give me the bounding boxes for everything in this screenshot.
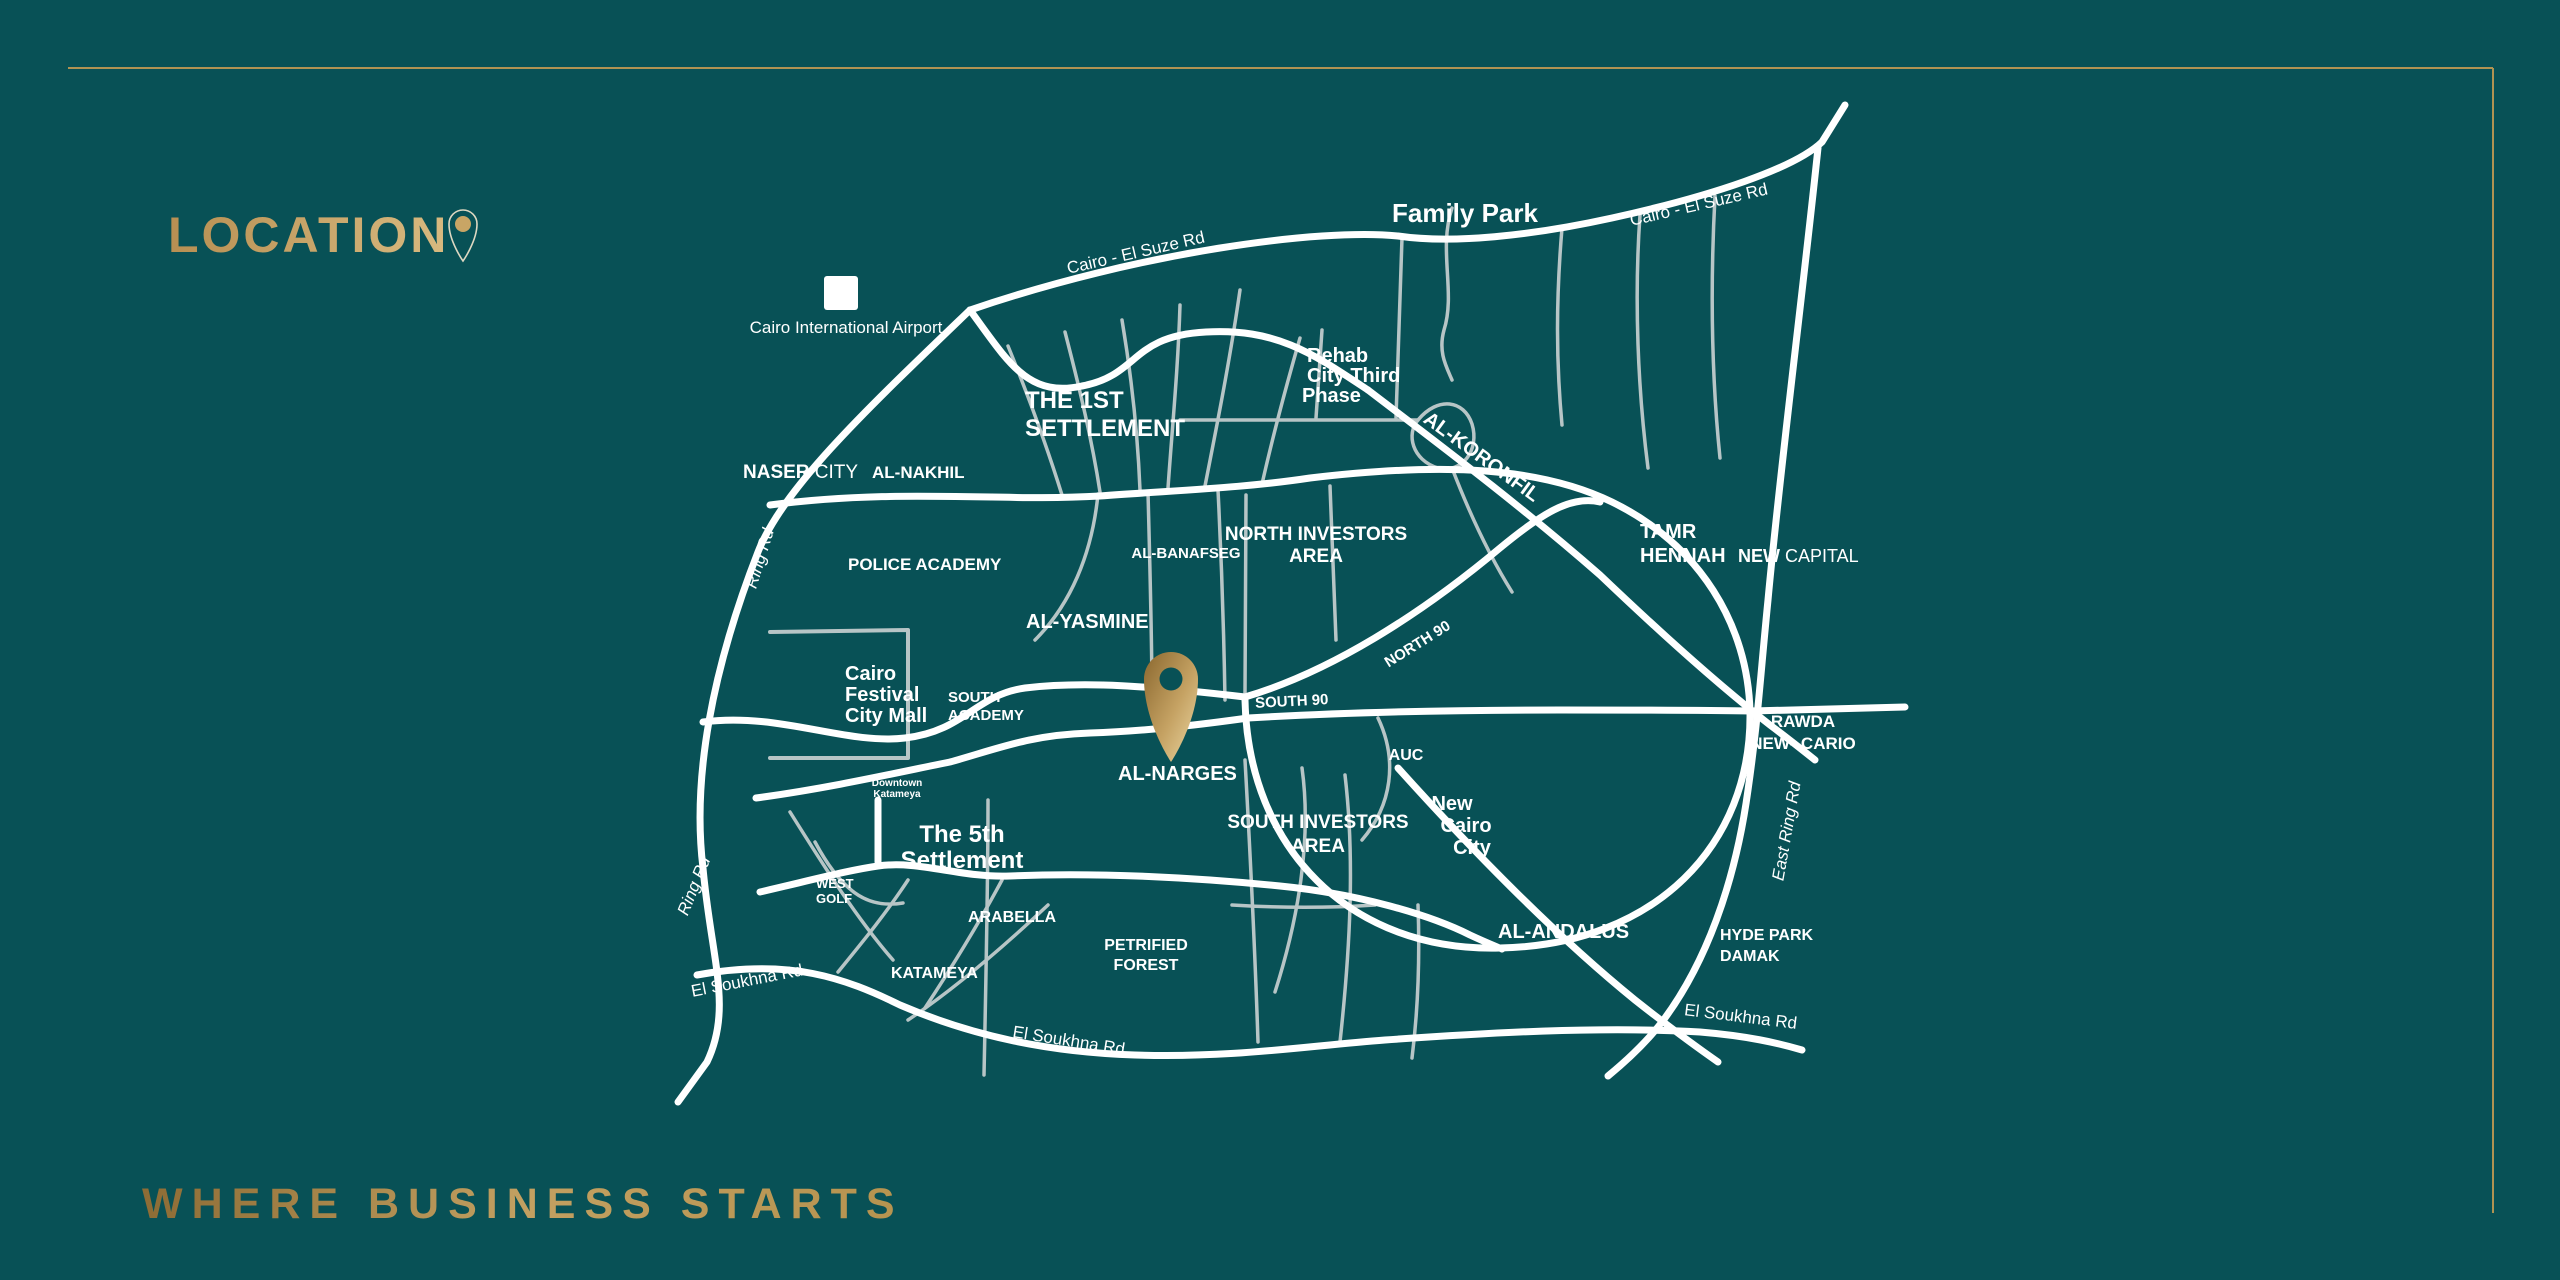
label-koronfil: AL-KORONFIL [1419, 408, 1543, 507]
label-rehab-l3: Phase [1302, 385, 1361, 407]
tagline: WHERE BUSINESS STARTS [142, 1180, 904, 1229]
label-rehab-l1: Rehab [1307, 345, 1368, 367]
label-rawda-l2: NEW--CARIO [1750, 734, 1855, 753]
label-north-investors-l2: AREA [1289, 546, 1343, 567]
label-downtown-l2: Katameya [873, 789, 921, 800]
label-petrified-l2: FOREST [1114, 957, 1179, 974]
label-naser-light: CITY [810, 462, 859, 483]
label-west-golf-l2: GOLF [816, 891, 852, 906]
project-pin-icon [1144, 652, 1198, 762]
road-label-south-90: SOUTH 90 [1255, 691, 1329, 712]
label-new-cairo-l2: Cairo [1440, 815, 1491, 837]
page-title: LOCATION [168, 206, 449, 264]
airport-label: Cairo International Airport [750, 318, 943, 337]
label-new-cairo-l1: New [1431, 793, 1473, 815]
label-naser-bold: NASER [743, 462, 810, 483]
road-label-ring-upper: Ring Rd [742, 526, 778, 591]
label-first-settlement-l2: SETTLEMENT [1025, 415, 1185, 442]
label-nakhil: AL-NAKHIL [872, 463, 965, 482]
label-police: POLICE ACADEMY [848, 555, 1002, 574]
label-rehab-l2: City Third [1307, 365, 1400, 387]
label-naser-city: NASER CITY [743, 462, 858, 483]
label-katameya: KATAMEYA [891, 965, 978, 982]
road-label-suze-right: Cairo - El Suze Rd [1628, 180, 1769, 230]
road-el-soukhna [697, 969, 1802, 1056]
label-rawda-l1: RAWDA [1771, 712, 1835, 731]
label-family-park: Family Park [1392, 198, 1539, 228]
label-yasmine: AL-YASMINE [1026, 611, 1149, 633]
label-cfcm-l3: City Mall [845, 705, 927, 727]
label-hyde-l2: DAMAK [1720, 948, 1780, 965]
road-label-soukhna-right: El Soukhna Rd [1683, 1000, 1798, 1033]
label-west-golf-l1: WEST [816, 876, 854, 891]
label-banafseg: AL-BANAFSEG [1131, 545, 1240, 562]
airport-marker: ✈ Cairo International Airport [750, 275, 943, 337]
label-narges: AL-NARGES [1118, 763, 1237, 785]
label-cfcm-l1: Cairo [845, 663, 896, 685]
label-tamr-l2: HENNAH [1640, 545, 1726, 567]
label-south-investors-l1: SOUTH INVESTORS [1227, 812, 1408, 833]
label-north-investors-l1: NORTH INVESTORS [1225, 524, 1407, 545]
label-cfcm-l2: Festival [845, 684, 919, 706]
road-label-east-ring: East Ring Rd [1769, 780, 1805, 882]
map-pin-icon [446, 208, 480, 264]
label-south-investors-l2: AREA [1291, 836, 1345, 857]
label-auc: AUC [1389, 747, 1424, 764]
label-hyde-l1: HYDE PARK [1720, 927, 1813, 944]
label-andalus: AL-ANDALUS [1498, 921, 1629, 943]
label-new-cairo-l3: City [1453, 837, 1492, 859]
label-new-capital-bold: NEW [1738, 546, 1780, 566]
label-arabella: ARABELLA [968, 909, 1056, 926]
label-fifth-l2: Settlement [901, 847, 1024, 874]
label-petrified-l1: PETRIFIED [1104, 937, 1188, 954]
label-tamr-l1: TAMR [1640, 521, 1697, 543]
label-first-settlement-l1: THE 1ST [1025, 387, 1124, 414]
label-south-academy-l2: ACADEMY [948, 707, 1024, 724]
label-south-academy-l1: SOUTH [948, 689, 1001, 706]
label-new-capital: NEW CAPITAL [1738, 546, 1859, 566]
label-fifth-l1: The 5th [919, 821, 1004, 848]
map: ✈ Cairo International Airport Cairo - El… [0, 0, 2560, 1280]
label-new-capital-light: CAPITAL [1780, 546, 1859, 566]
label-downtown-l1: Downtown [872, 778, 923, 789]
location-slide: ✈ Cairo International Airport Cairo - El… [0, 0, 2560, 1280]
